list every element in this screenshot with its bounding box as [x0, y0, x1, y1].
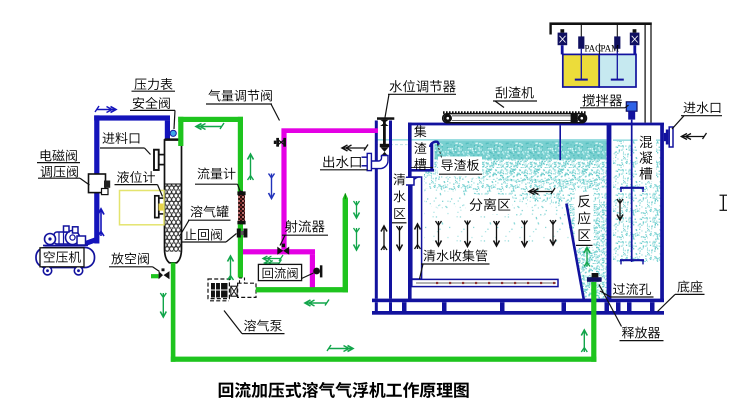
svg-text:PAM: PAM — [601, 44, 620, 54]
svg-text:PAC: PAC — [585, 44, 602, 54]
